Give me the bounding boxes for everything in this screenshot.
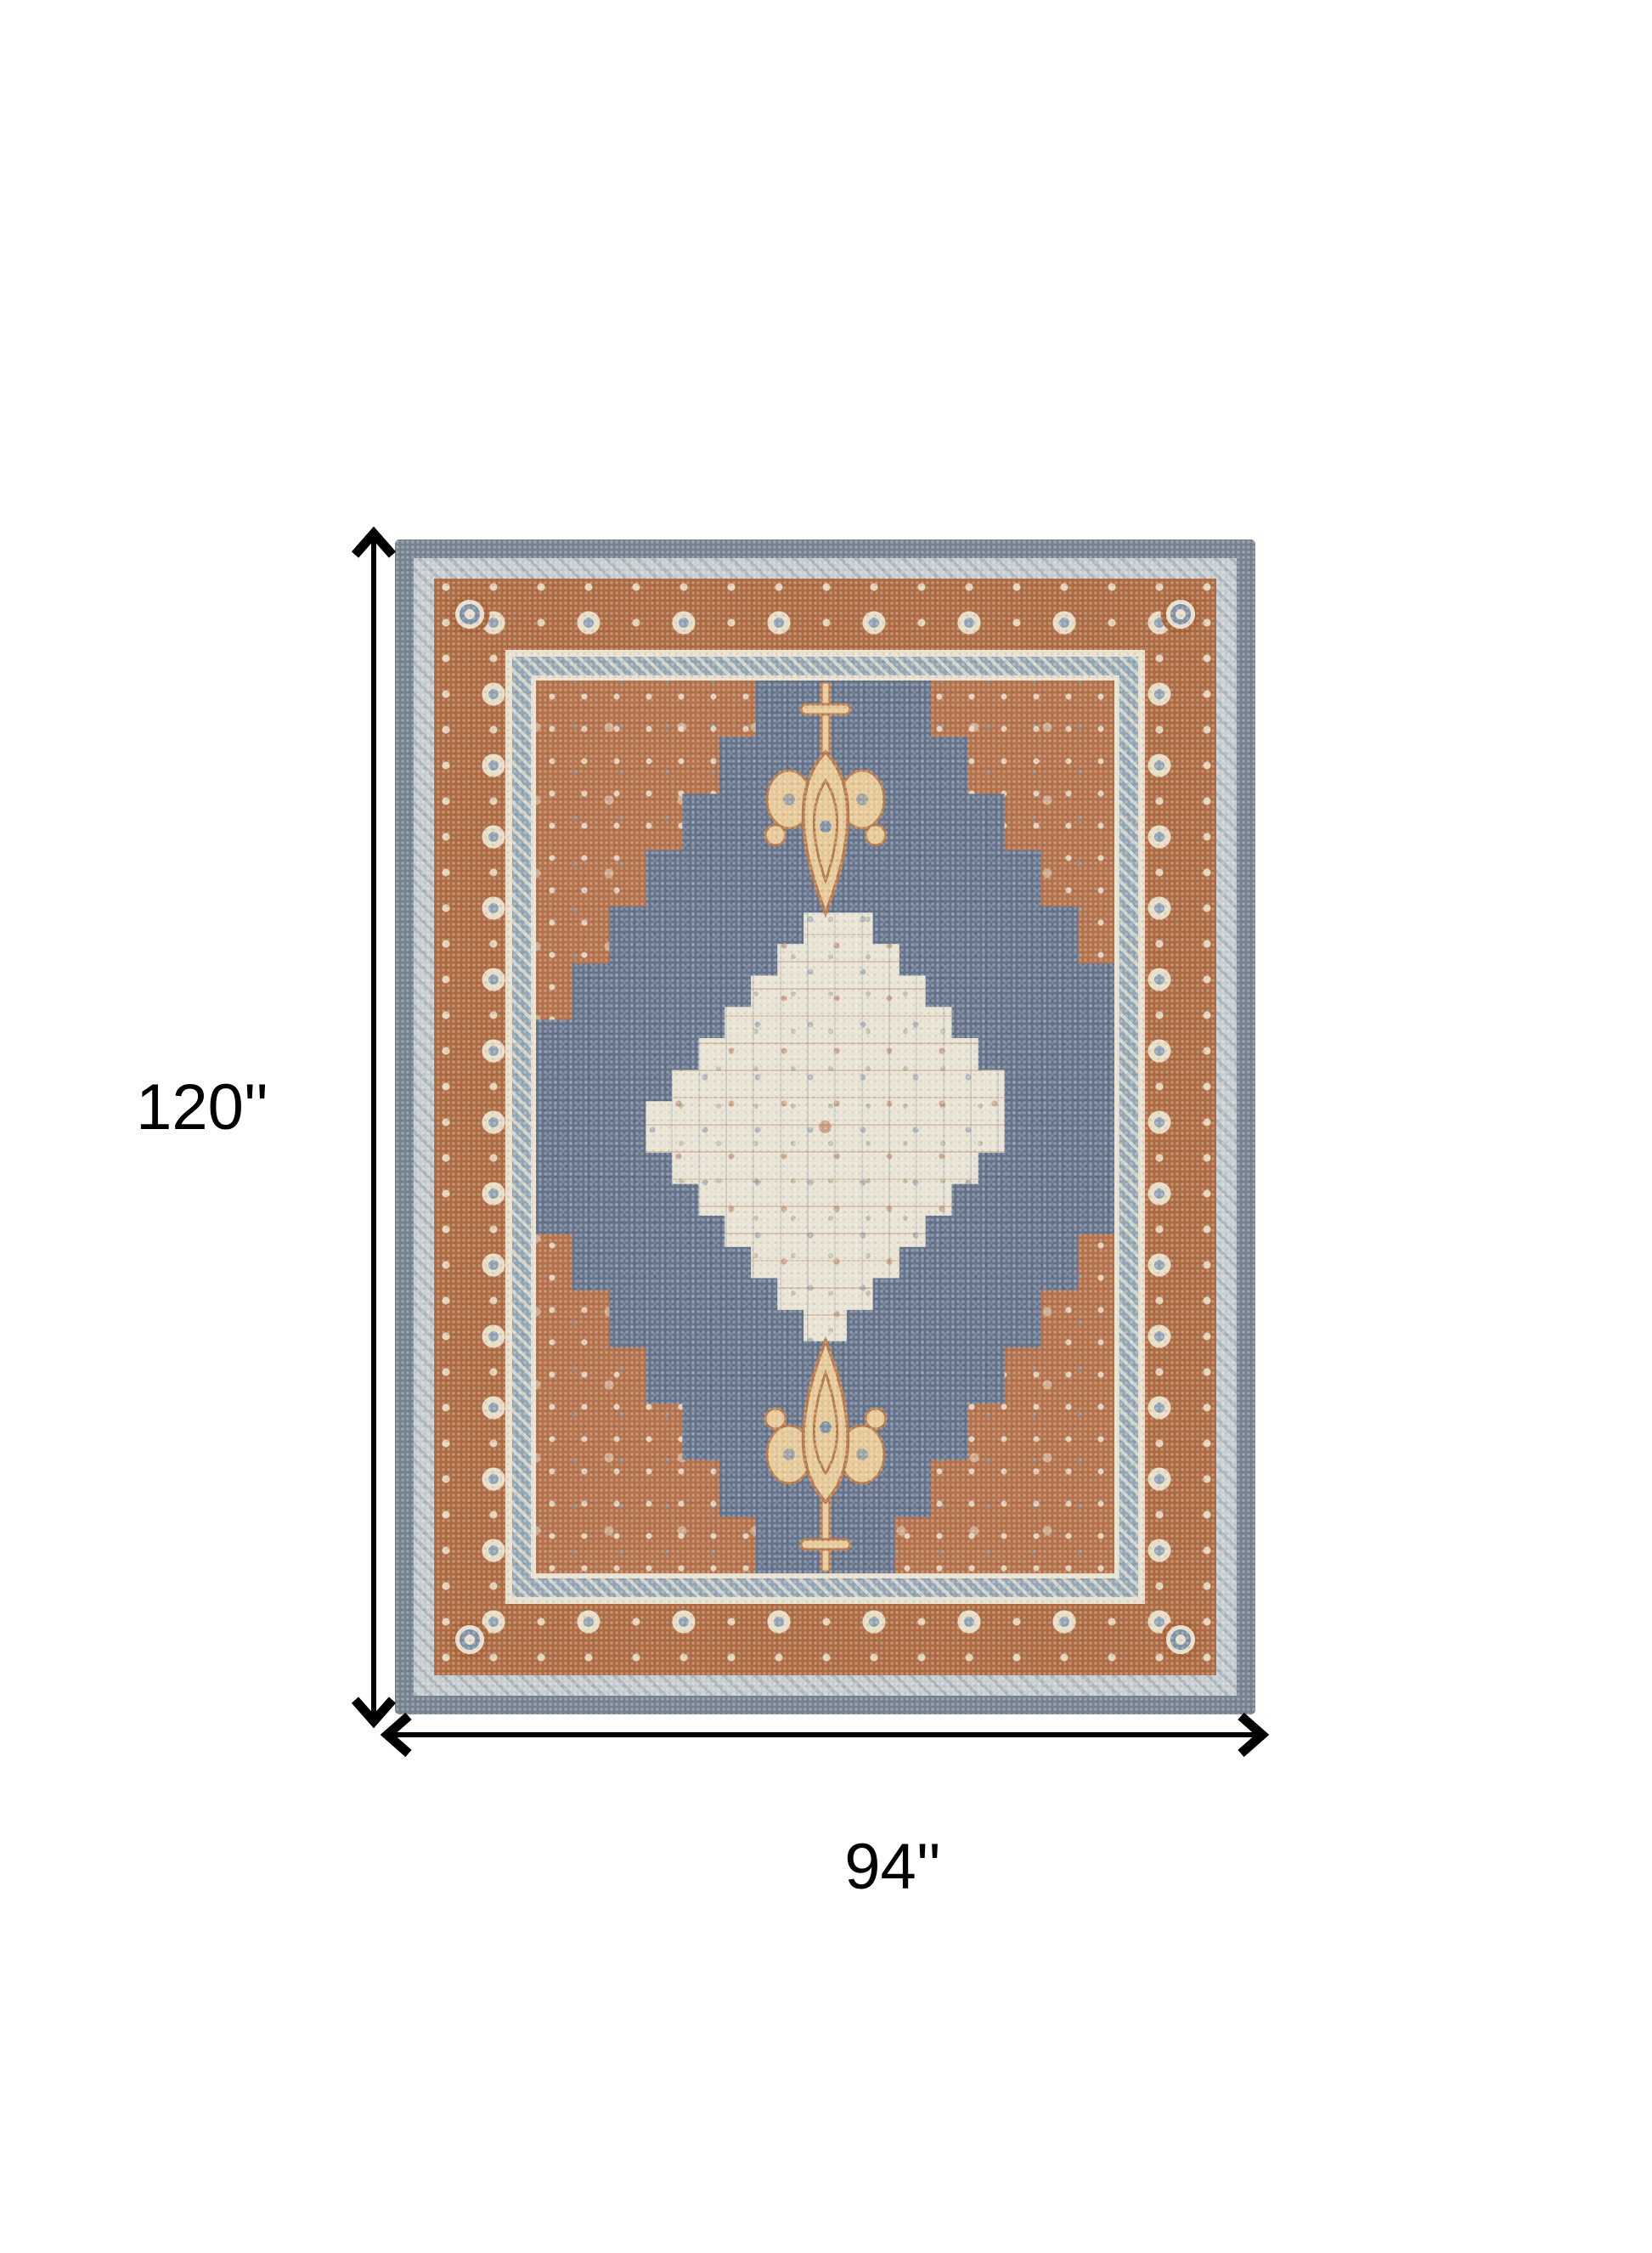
rug-finial-top [753, 682, 898, 929]
rug-border-rosette-bottom-right [1157, 1616, 1204, 1663]
rug-border-rosette-top-right [1157, 590, 1204, 638]
rug-finial-bottom [753, 1325, 898, 1572]
dimension-diagram: 120'' 94'' [0, 0, 1652, 2253]
width-dimension-arrow [374, 1705, 1276, 1765]
rug-border-rosette-top-left [446, 590, 493, 638]
rug-border-rosette-bottom-left [446, 1616, 493, 1663]
width-dimension-label: 94'' [791, 1835, 995, 1900]
rug-field [536, 680, 1114, 1573]
height-dimension-arrow [344, 522, 403, 1733]
height-dimension-label: 120'' [100, 1076, 304, 1140]
rug-image [395, 539, 1255, 1714]
